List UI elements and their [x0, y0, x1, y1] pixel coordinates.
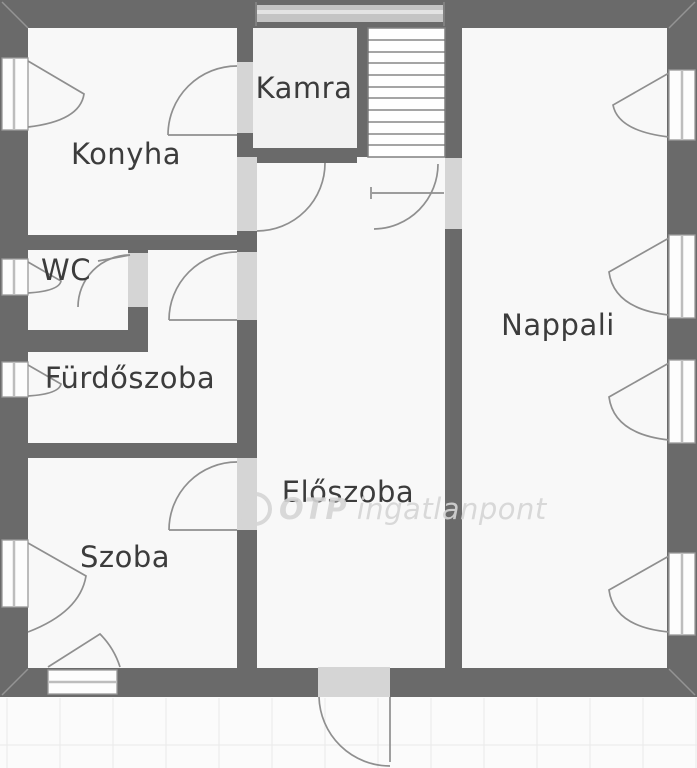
window-nappali-1	[669, 70, 695, 140]
window-nappali-3	[669, 360, 695, 443]
room-area-eloszoba	[257, 157, 445, 668]
opening-wc	[128, 253, 148, 307]
window-konyha	[2, 58, 28, 130]
window-szoba-left	[2, 540, 28, 607]
kamra-bottom-wall	[253, 148, 357, 163]
opening-entry	[318, 667, 390, 697]
room-label-wc: WC	[41, 253, 91, 287]
staircase-area	[368, 28, 445, 157]
room-label-kamra: Kamra	[256, 71, 353, 105]
watermark-brand: OTP	[279, 492, 348, 526]
window-furdoszoba	[2, 362, 28, 397]
watermark-logo-icon	[238, 492, 272, 526]
window-wc	[2, 259, 28, 295]
terrace-area	[0, 697, 697, 768]
opening-nappali	[445, 158, 462, 229]
room-area-nappali	[462, 28, 667, 668]
window-szoba-bottom	[48, 670, 117, 694]
room-label-nappali: Nappali	[501, 308, 615, 342]
window-nappali-2	[669, 235, 695, 318]
room-label-furdoszoba: Fürdőszoba	[45, 361, 215, 395]
opening-konyha-kamra	[237, 62, 253, 133]
bath-lobby-area	[148, 250, 237, 352]
opening-konyha-eloszoba	[237, 157, 257, 231]
opening-furdoszoba	[237, 252, 257, 320]
watermark-suffix: ingatlanpont	[357, 492, 547, 526]
watermark: OTP ingatlanpont	[238, 492, 547, 526]
window-nappali-4	[669, 553, 695, 635]
floorplan-canvas: Konyha Kamra WC Fürdőszoba Szoba Előszob…	[0, 0, 697, 768]
room-label-szoba: Szoba	[80, 540, 170, 574]
room-label-konyha: Konyha	[71, 137, 181, 171]
room-area-konyha	[28, 28, 237, 235]
